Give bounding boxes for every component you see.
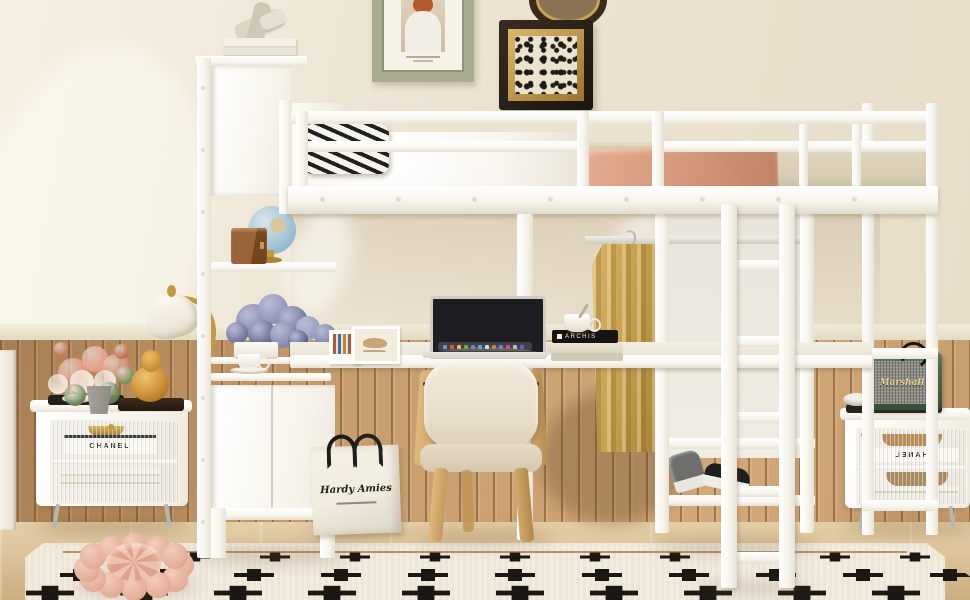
post-bolt	[201, 148, 205, 152]
laptop-screen	[430, 296, 546, 359]
rug-motif	[669, 569, 709, 581]
laptop-base	[422, 352, 548, 358]
rug-motif-block	[910, 553, 921, 562]
rail-post-2	[577, 111, 589, 195]
desk-cup-handle	[588, 318, 601, 332]
laptop-dock	[438, 342, 532, 351]
ladder-rail-right	[779, 204, 795, 588]
rug-motif-block	[590, 553, 601, 562]
glass-fluting-right	[858, 430, 966, 504]
guardrail-mid-right	[652, 141, 938, 152]
beam-bolt	[624, 197, 629, 202]
tower-shelf-1	[211, 262, 336, 272]
end-grid-vertical-2	[852, 124, 861, 186]
rug-motif	[580, 553, 610, 562]
bag-subline	[336, 501, 376, 504]
guardrail-top	[291, 111, 938, 124]
hydrangea-blossom	[226, 322, 248, 344]
rug-motif	[582, 569, 622, 581]
green-picture-frame	[372, 0, 474, 82]
desk-book-black: ARCHIS	[552, 330, 618, 343]
rug-motif-block	[350, 553, 361, 562]
chair-back-cushion	[424, 362, 538, 448]
wardrobe-post-left	[655, 214, 669, 533]
nightstand-knob	[108, 424, 114, 430]
rug-motif	[234, 569, 274, 581]
rug-motif-block	[324, 586, 341, 600]
guardrail-mid-left	[296, 141, 589, 152]
bed-platform-beam	[288, 186, 938, 214]
beam-bolt	[396, 197, 401, 202]
rug-motif-block	[670, 553, 681, 562]
post-bolt	[201, 210, 205, 214]
nightstand-glass-door: CHANEL	[50, 420, 180, 504]
rug-motif	[872, 586, 920, 600]
marshall-logo: Marshall	[880, 378, 925, 388]
rug-motif	[660, 553, 690, 562]
lamp-finial	[167, 285, 176, 297]
pouf-ball	[162, 543, 188, 569]
spool-grid-art	[333, 334, 351, 354]
rug-motif-block	[595, 569, 609, 581]
tower-shelf-3	[211, 373, 331, 381]
beam-bolt	[472, 197, 477, 202]
tower-leg-left	[211, 508, 226, 558]
rug-motif	[26, 586, 74, 600]
horse-sketch	[363, 338, 387, 348]
left-edge-cabinet	[0, 350, 16, 530]
rug-motif-block	[42, 586, 59, 600]
rug-motif	[590, 586, 638, 600]
box-clasp	[260, 242, 264, 249]
bed-end-crossbar-low	[862, 500, 938, 511]
rail-post-4	[926, 111, 938, 195]
rug-motif	[900, 553, 930, 562]
knot-pouf	[72, 535, 198, 597]
rug-motif-block	[430, 553, 441, 562]
post-bolt	[201, 520, 205, 524]
post-bolt	[201, 334, 205, 338]
bag-handle-right	[352, 433, 383, 468]
tower-top	[195, 56, 307, 66]
dock-icons	[443, 345, 447, 349]
frame-caption-line2	[413, 60, 433, 62]
beam-bolt	[776, 197, 781, 202]
desk-book-grey	[551, 353, 623, 361]
bed-end-crossbar-mid	[862, 348, 938, 359]
rug-motif	[495, 569, 535, 581]
flower-blossom	[114, 344, 129, 359]
rug-motif-block	[830, 553, 841, 562]
beam-bolt	[700, 197, 705, 202]
rug-motif	[308, 586, 356, 600]
rug-motif-block	[508, 569, 522, 581]
rug-motif	[496, 586, 544, 600]
flower-blossom	[64, 384, 86, 406]
pouf-center	[106, 543, 162, 581]
rug-motif-block	[888, 586, 905, 600]
rug-motif	[402, 586, 450, 600]
book-logo-box	[557, 334, 562, 339]
rail-post-3	[652, 111, 664, 195]
beam-bolt	[548, 197, 553, 202]
chair-leg-back	[461, 470, 474, 532]
rug-motif-block	[421, 569, 435, 581]
rug-motif	[500, 553, 530, 562]
desk-cup	[564, 314, 590, 332]
frame-caption-line	[406, 56, 440, 58]
bag-logo: Hardy Amies	[312, 482, 400, 496]
rug-motif-block	[856, 569, 870, 581]
rug-motif-block	[247, 569, 261, 581]
rug-motif	[321, 569, 361, 581]
desk-book-cream	[547, 343, 623, 353]
ornate-picture-frame	[499, 20, 593, 110]
desk-frame-horse	[352, 326, 400, 364]
beam-bolt	[320, 197, 325, 202]
cabinet-seam	[271, 385, 273, 513]
shopping-bag: Hardy Amies	[310, 444, 401, 535]
post-bolt	[201, 86, 205, 90]
hanging-rod	[585, 236, 803, 244]
rug-motif	[214, 586, 262, 600]
rug-motif-block	[606, 586, 623, 600]
ladder-rail-left	[721, 204, 737, 588]
portrait-photo	[401, 0, 445, 52]
flower-blossom	[54, 342, 68, 356]
tower-post-left	[197, 58, 211, 558]
bedroom-scene: CHANEL CHANEL	[0, 0, 970, 600]
rug-motif	[408, 569, 448, 581]
rug-motif-block	[943, 569, 957, 581]
portrait-dress	[405, 11, 441, 52]
rug-motif-block	[512, 586, 529, 600]
rail-post-1	[296, 111, 308, 195]
rug-motif-block	[334, 569, 348, 581]
glass-fluting	[52, 422, 178, 502]
beam-bolt	[852, 197, 857, 202]
floral-artwork	[515, 36, 577, 94]
rug-motif-block	[510, 553, 521, 562]
end-grid-vertical-1	[799, 124, 808, 186]
book-spine-text: ARCHIS	[565, 334, 597, 340]
rug-motif-block	[682, 569, 696, 581]
post-bolt	[201, 458, 205, 462]
post-bolt	[201, 396, 205, 400]
rug-motif	[843, 569, 883, 581]
rug-motif	[820, 553, 850, 562]
rug-motif	[420, 553, 450, 562]
wardrobe-post-right	[800, 214, 814, 533]
rug-motif-block	[418, 586, 435, 600]
hydrangea-flowers	[222, 282, 338, 346]
post-bolt	[201, 272, 205, 276]
cup-saucer	[230, 367, 268, 374]
rug-motif-block	[230, 586, 247, 600]
